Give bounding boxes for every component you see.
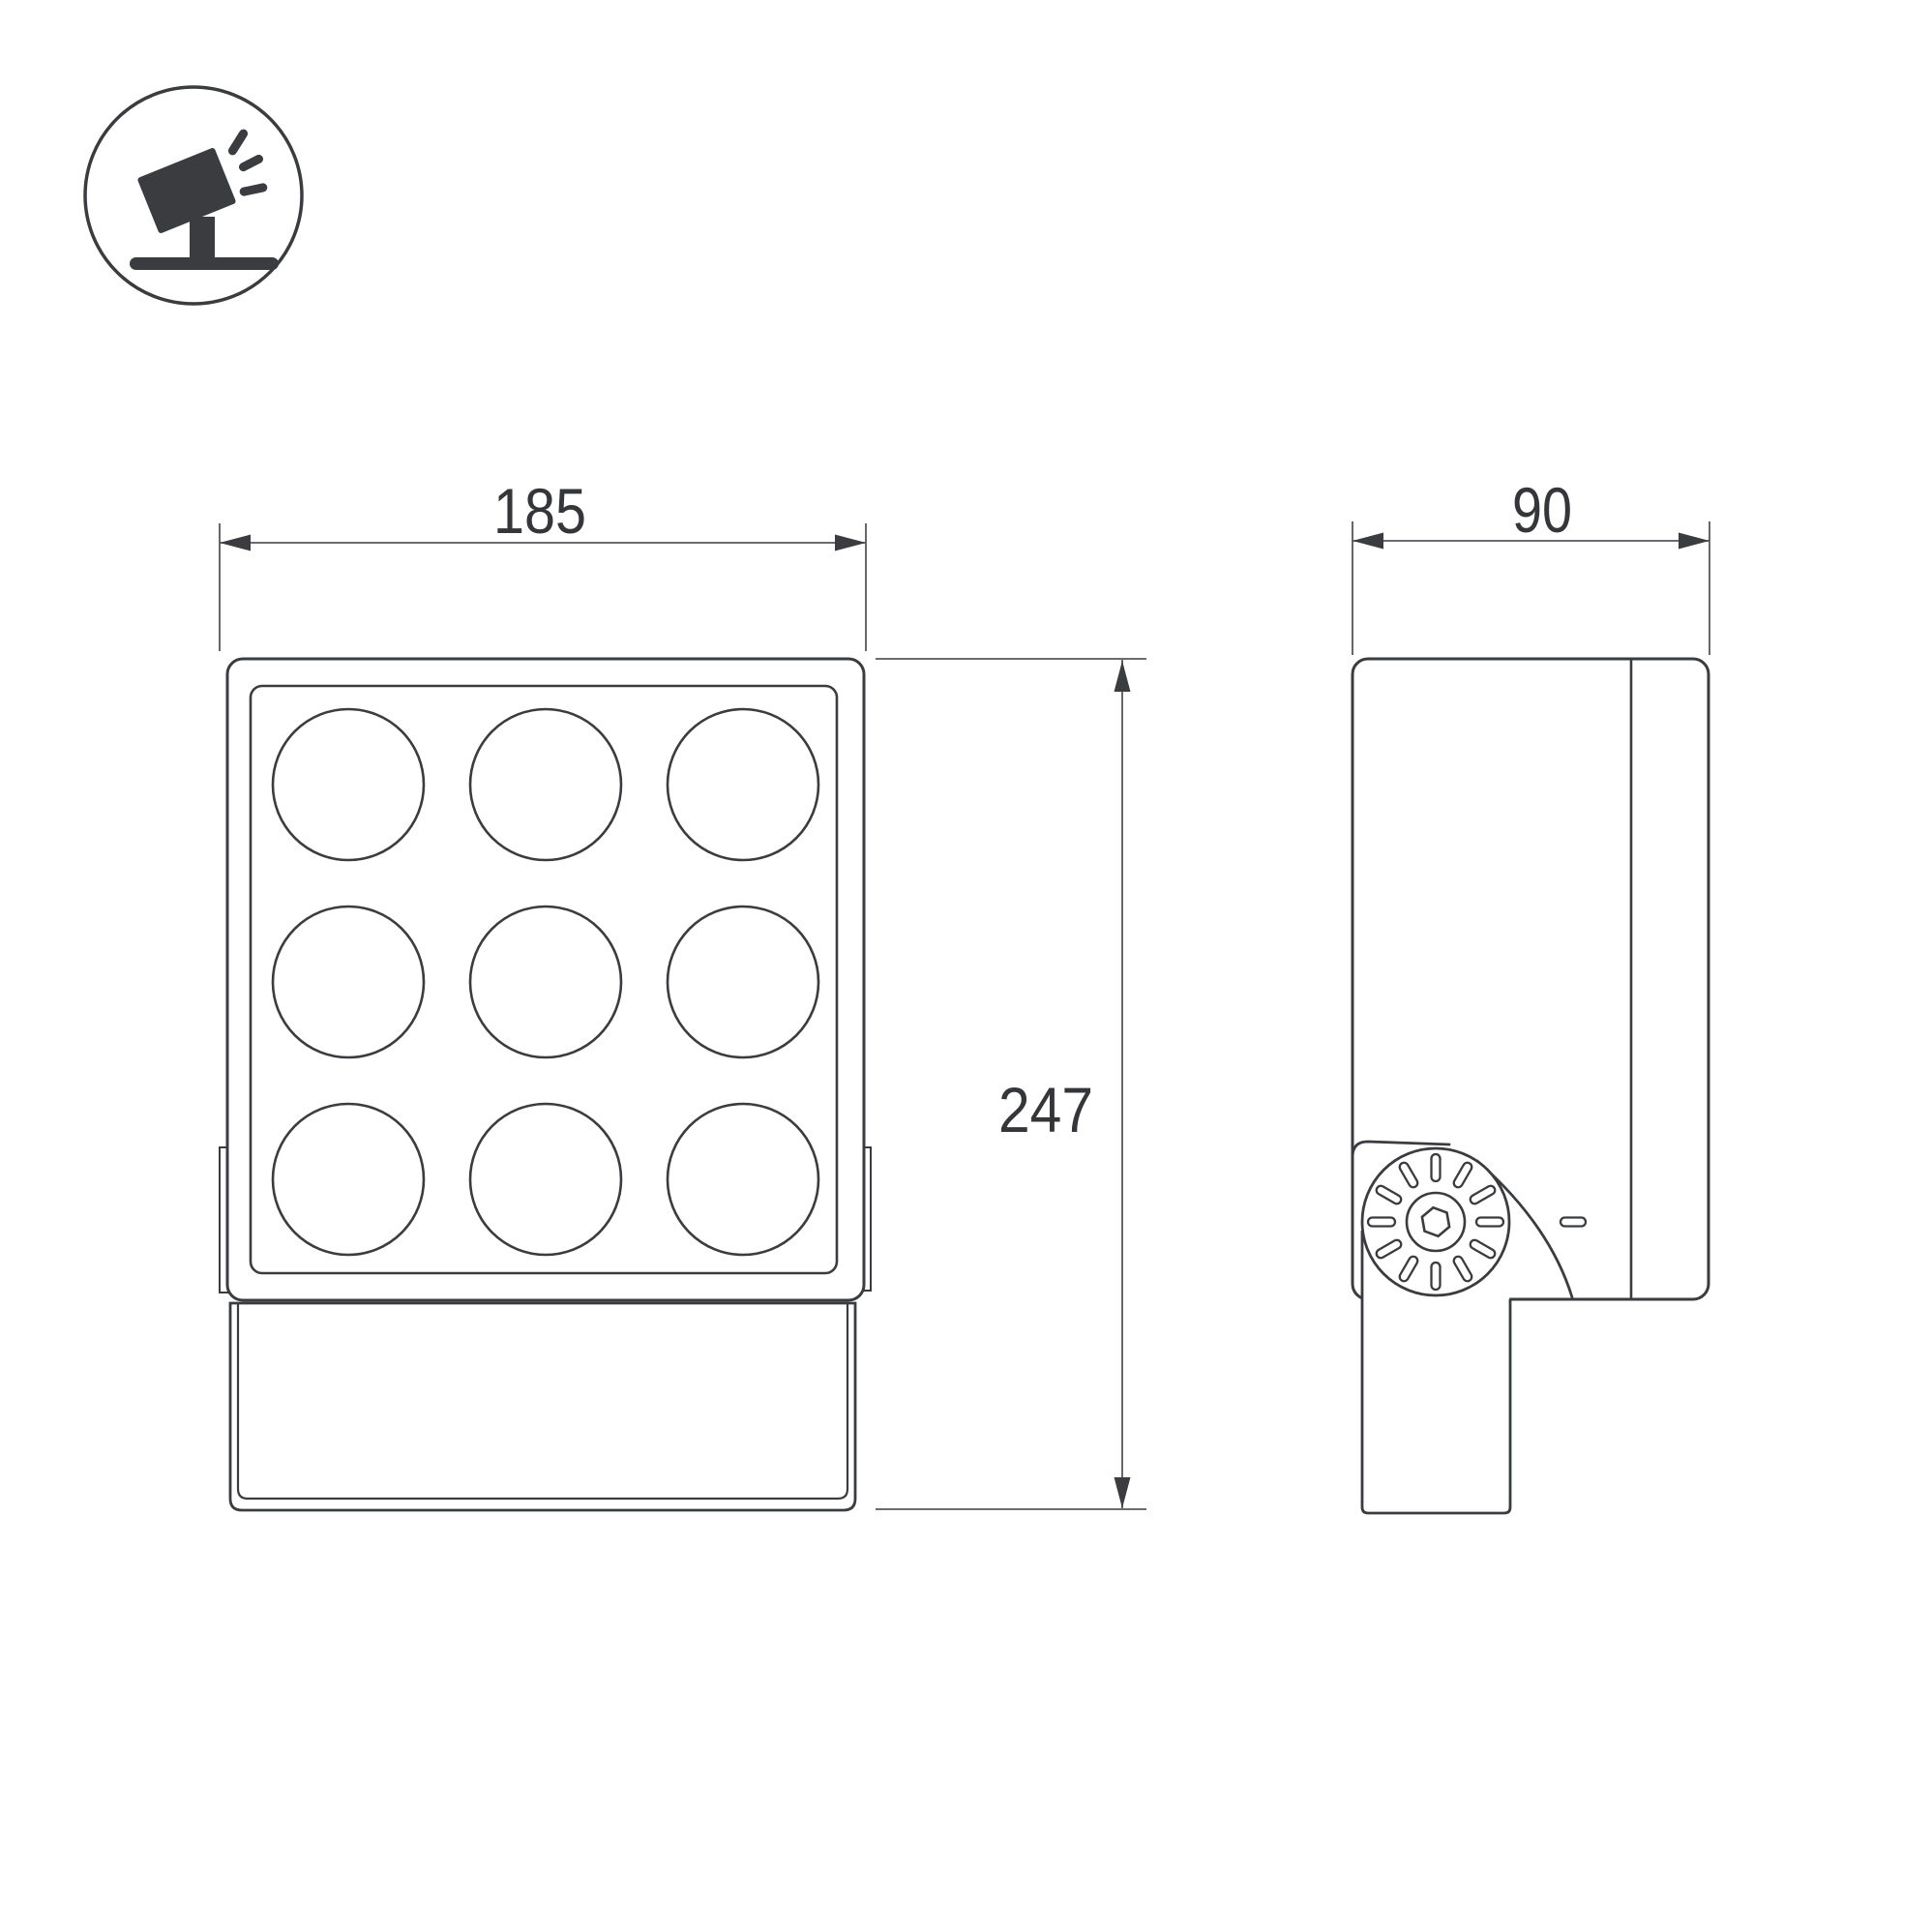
side-view [1352, 659, 1709, 1513]
arrowhead-left [1352, 533, 1383, 550]
side-slot-mark [1560, 1218, 1586, 1227]
lens-circle [470, 1104, 621, 1255]
icon-light-ray [237, 153, 264, 172]
dimension-front-height: 247 [876, 659, 1146, 1509]
lens-circle [470, 907, 621, 1057]
arrowhead-bottom [1115, 1477, 1131, 1508]
lens-circle [668, 709, 818, 860]
lens-circle [470, 709, 621, 860]
arrowhead-right [835, 535, 866, 551]
hex-socket-screw [1422, 1207, 1449, 1236]
dimension-label-front-height: 247 [998, 1074, 1093, 1145]
knob-tick [1368, 1218, 1395, 1227]
icon-light-ray [226, 128, 250, 157]
arrowhead-top [1115, 661, 1131, 692]
dimension-label-side-width: 90 [1512, 474, 1572, 546]
lens-circle [668, 1104, 818, 1255]
lens-circle [273, 907, 424, 1057]
dimension-label-front-width: 185 [493, 475, 586, 547]
spotlight-icon [85, 87, 302, 304]
knob-tick [1432, 1263, 1441, 1290]
icon-light-ray [239, 183, 268, 197]
lens-circle [273, 1104, 424, 1255]
knob-tick [1432, 1154, 1441, 1181]
lens-circle [668, 907, 818, 1057]
icon-base-bar [130, 257, 279, 270]
arrowhead-right [1679, 533, 1709, 550]
lens-grid [273, 709, 818, 1255]
icon-lamp-head [137, 147, 237, 234]
dimension-side-width: 90 [1352, 474, 1709, 655]
knob-tick [1476, 1218, 1503, 1227]
lens-circle [273, 709, 424, 860]
icon-lamp-post [190, 217, 215, 263]
dimension-front-width: 185 [220, 475, 866, 651]
drawing-canvas: 185 90 247 [0, 0, 1932, 1932]
front-view [220, 659, 871, 1510]
arrowhead-left [220, 535, 251, 551]
front-driver-box-outer [230, 1303, 855, 1510]
